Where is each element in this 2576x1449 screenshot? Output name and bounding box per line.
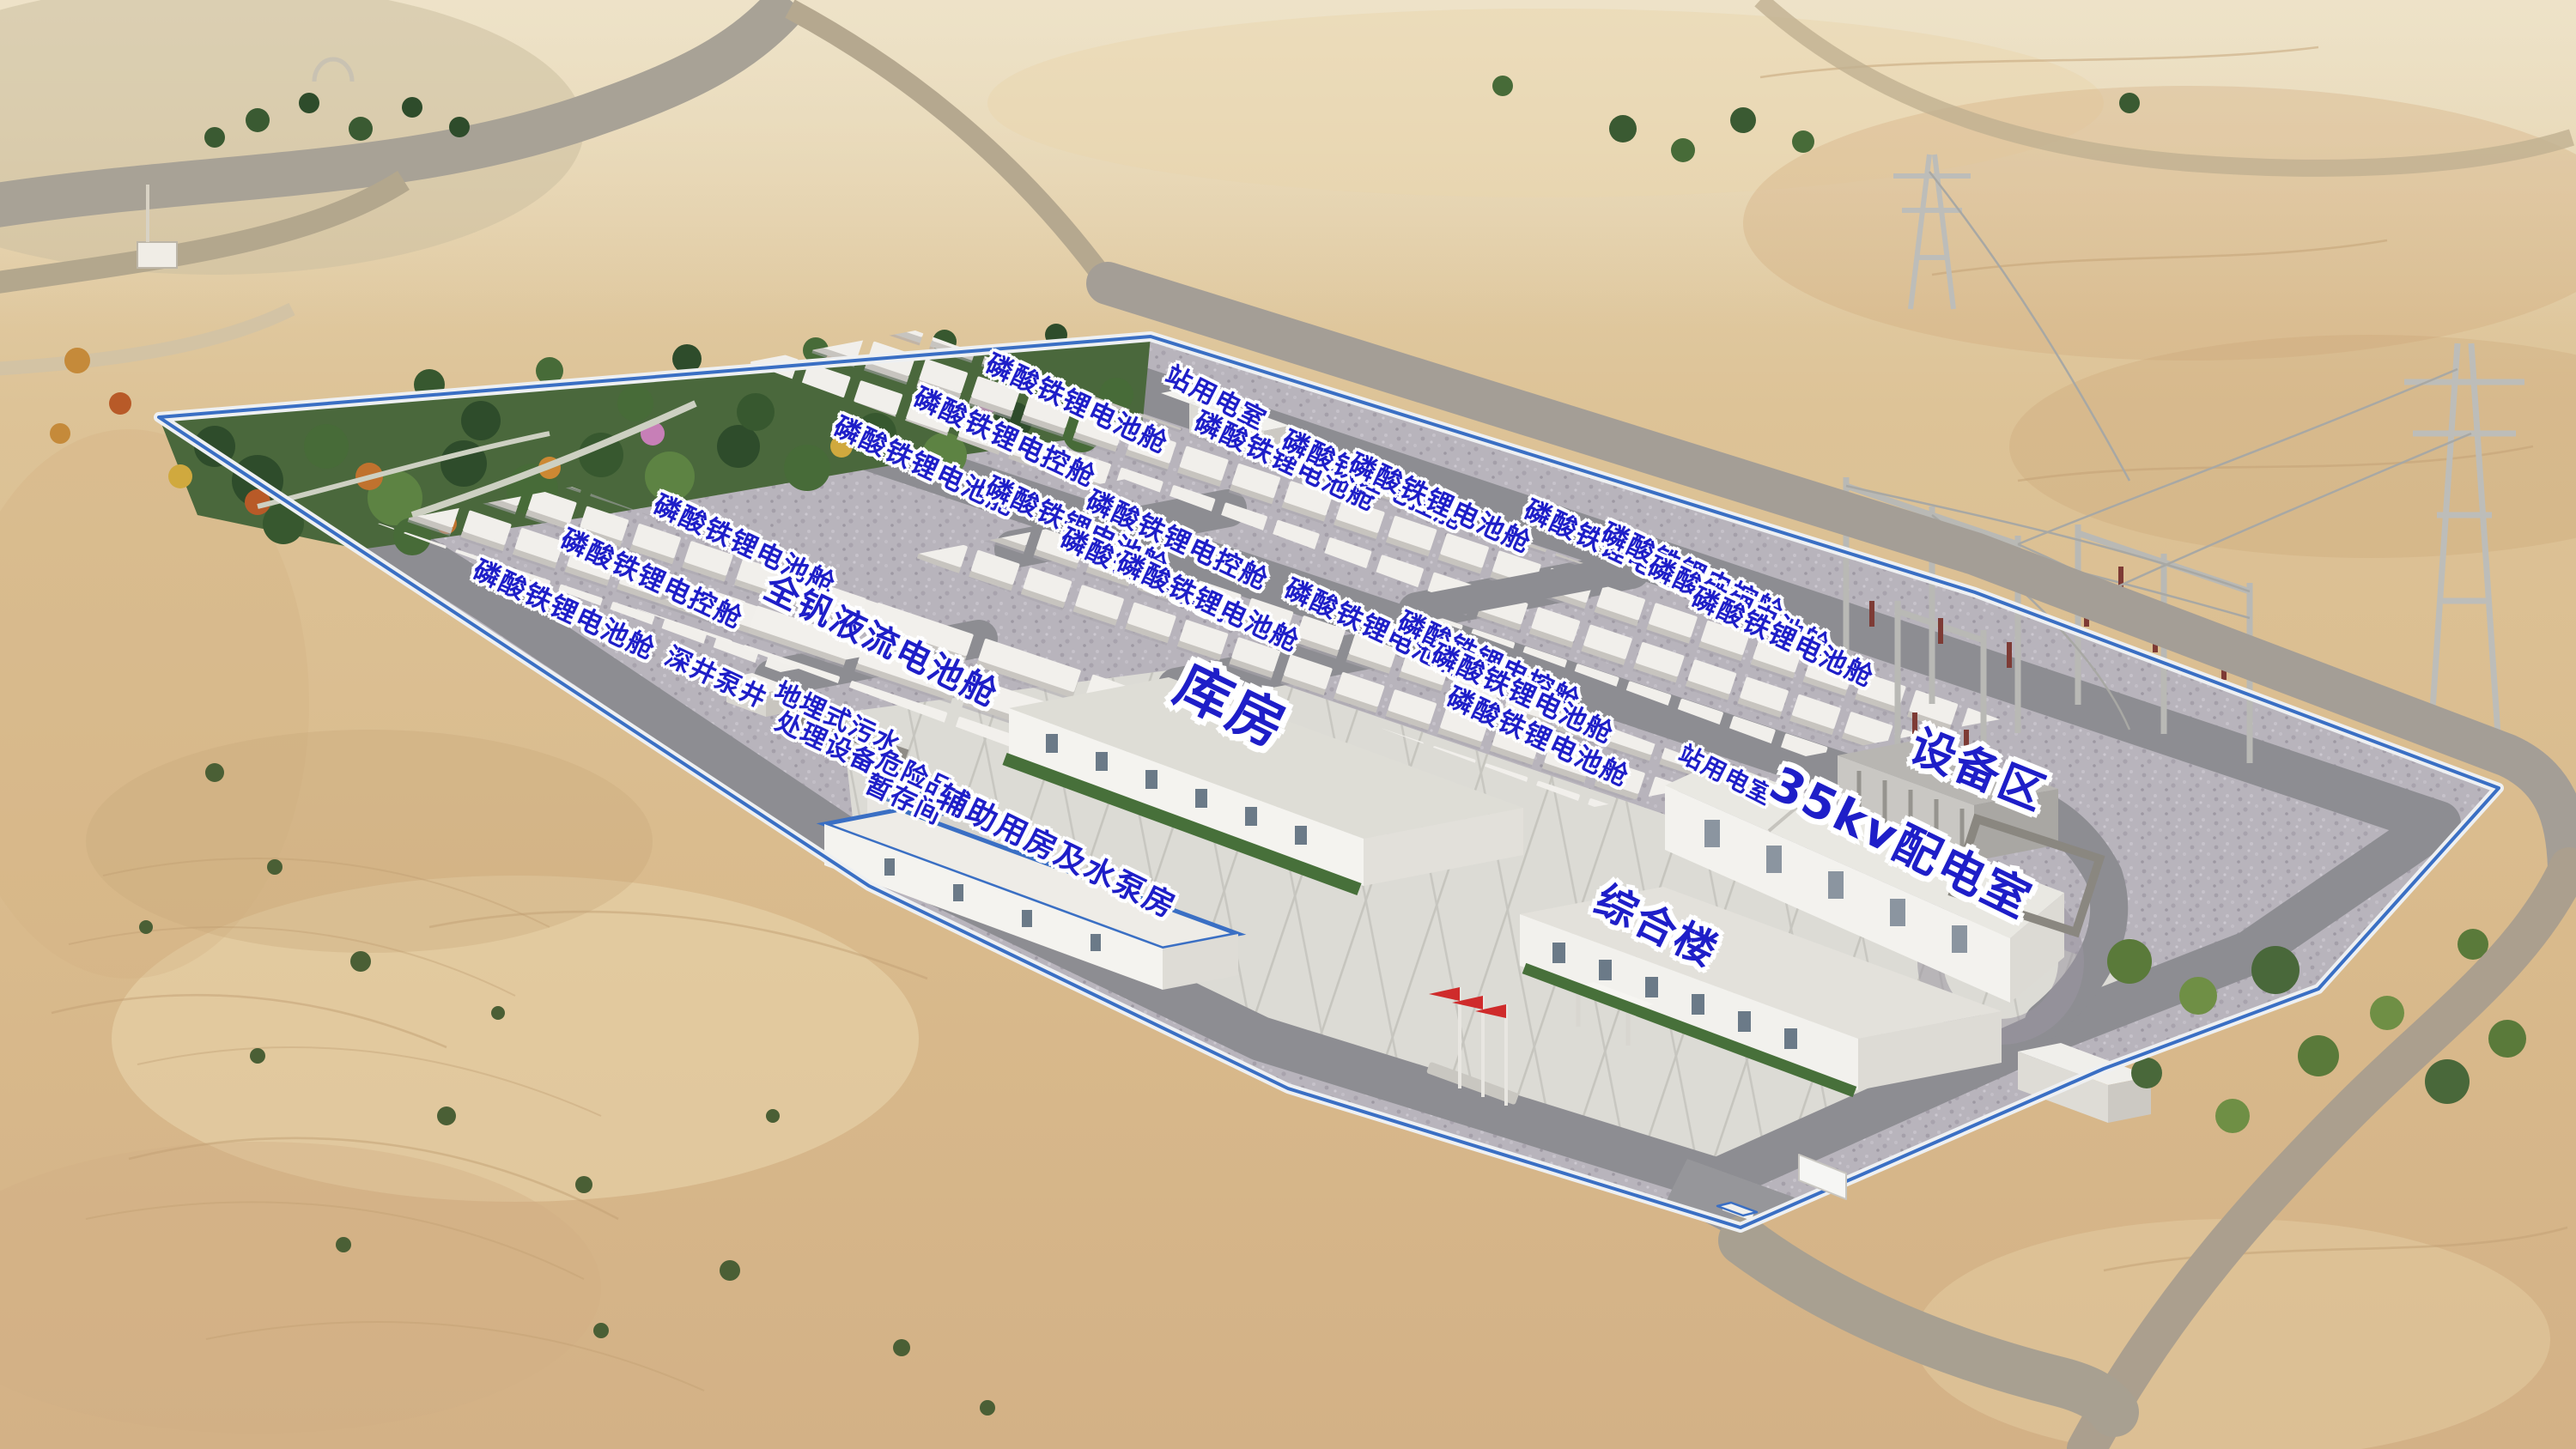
scene-background xyxy=(0,0,2576,1449)
aerial-site-render: { "meta": { "description": "Aerial 3D re… xyxy=(0,0,2576,1449)
